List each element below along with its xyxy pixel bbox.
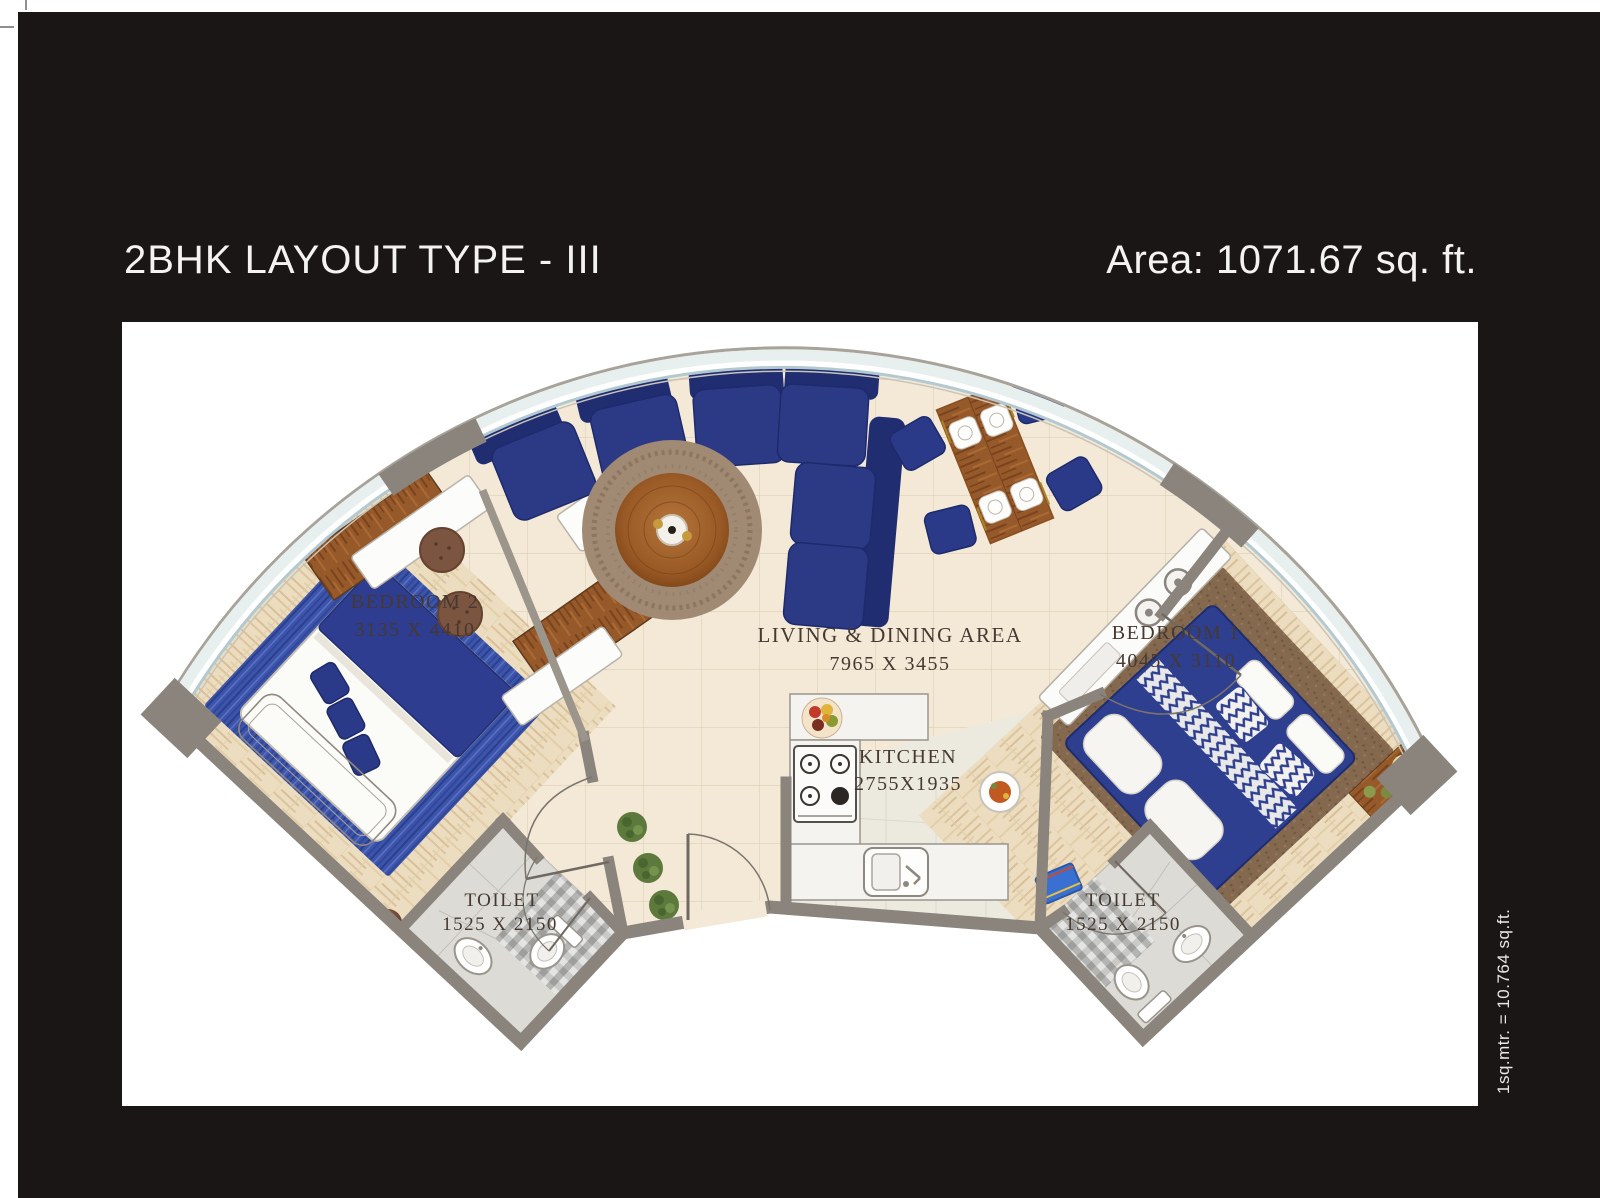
coffee-table-rug: [582, 440, 762, 620]
bedroom1-label: BEDROOM 1: [1112, 622, 1241, 644]
toilet-right-dims: 1525 X 2150: [1065, 914, 1181, 935]
fruit-bowl-icon: [802, 698, 842, 738]
pouf: [420, 528, 464, 572]
toilet-right-label: TOILET: [1085, 890, 1160, 911]
sink-icon: [864, 848, 928, 896]
crop-mark-icon: [25, 0, 27, 10]
bedroom1-dims: 4045 X 3110: [1116, 650, 1236, 672]
floorplan-svg: BEDROOM 2 3135 X 4410 LIVING & DINING AR…: [122, 322, 1478, 1106]
crop-mark-icon: [0, 26, 14, 28]
stove-icon: [794, 746, 856, 822]
living-dining-dims: 7965 X 3455: [830, 653, 951, 675]
floorplan-panel: BEDROOM 2 3135 X 4410 LIVING & DINING AR…: [122, 322, 1478, 1106]
serving-plate-icon: [980, 772, 1020, 812]
plant-icon: [649, 890, 679, 920]
plant-icon: [633, 853, 663, 883]
toilet-left-dims: 1525 X 2150: [442, 914, 558, 935]
page-title: 2BHK LAYOUT TYPE - III: [124, 238, 602, 283]
page: 2BHK LAYOUT TYPE - III Area: 1071.67 sq.…: [0, 0, 1600, 1198]
toilet-left-label: TOILET: [464, 890, 539, 911]
plant-icon: [617, 812, 647, 842]
kitchen-dims: 2755X1935: [854, 773, 962, 795]
left-print-margin: [0, 0, 18, 1198]
area-label: Area: 1071.67 sq. ft.: [1106, 238, 1477, 283]
living-dining-label: LIVING & DINING AREA: [757, 623, 1022, 647]
bedroom2-label: BEDROOM 2: [351, 591, 480, 613]
scale-note: 1sq.mtr. = 10.764 sq.ft.: [1494, 909, 1514, 1094]
kitchen-label: KITCHEN: [859, 746, 957, 768]
bedroom2-dims: 3135 X 4410: [355, 619, 476, 641]
